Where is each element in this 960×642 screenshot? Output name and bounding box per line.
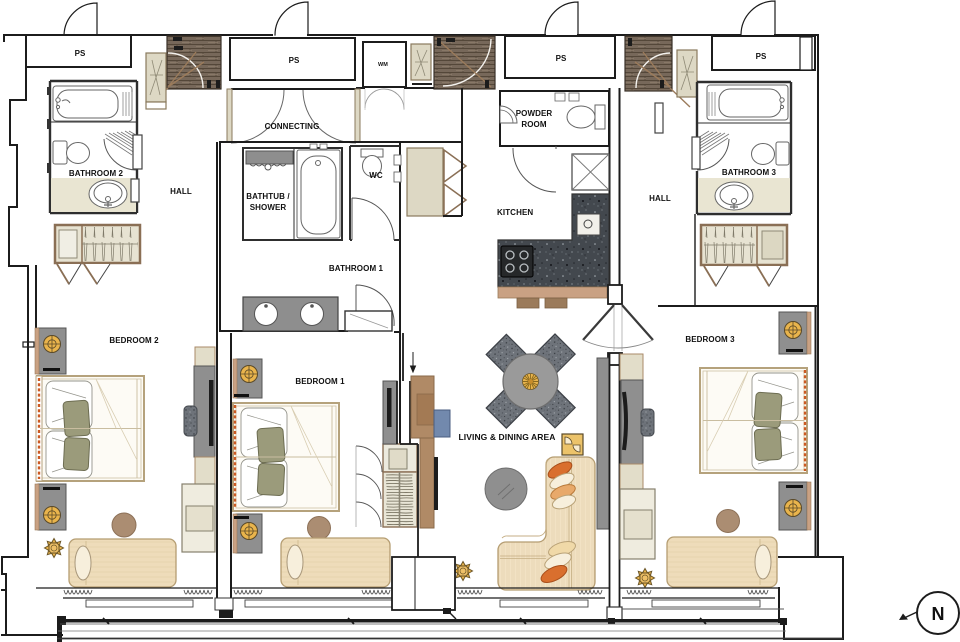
svg-text:PS: PS xyxy=(75,49,86,58)
svg-text:BATHROOM 1: BATHROOM 1 xyxy=(329,264,384,273)
svg-text:POWDER: POWDER xyxy=(516,109,553,118)
svg-text:WC: WC xyxy=(369,171,383,180)
svg-text:BEDROOM 3: BEDROOM 3 xyxy=(685,335,735,344)
svg-text:N: N xyxy=(932,604,945,624)
svg-text:CONNECTING: CONNECTING xyxy=(265,122,320,131)
svg-text:BEDROOM 1: BEDROOM 1 xyxy=(295,377,345,386)
svg-text:KITCHEN: KITCHEN xyxy=(497,208,533,217)
svg-text:ROOM: ROOM xyxy=(521,120,547,129)
svg-text:HALL: HALL xyxy=(170,187,192,196)
svg-text:LIVING & DINING AREA: LIVING & DINING AREA xyxy=(458,432,555,442)
svg-text:BATHTUB /: BATHTUB / xyxy=(246,192,290,201)
svg-text:PS: PS xyxy=(756,52,767,61)
svg-text:BATHROOM 2: BATHROOM 2 xyxy=(69,169,124,178)
svg-text:PS: PS xyxy=(556,54,567,63)
svg-text:SHOWER: SHOWER xyxy=(250,203,287,212)
svg-text:HALL: HALL xyxy=(649,194,671,203)
svg-text:WM: WM xyxy=(378,62,388,68)
svg-text:BEDROOM 2: BEDROOM 2 xyxy=(109,336,159,345)
svg-text:BATHROOM 3: BATHROOM 3 xyxy=(722,168,777,177)
svg-text:PS: PS xyxy=(289,56,300,65)
